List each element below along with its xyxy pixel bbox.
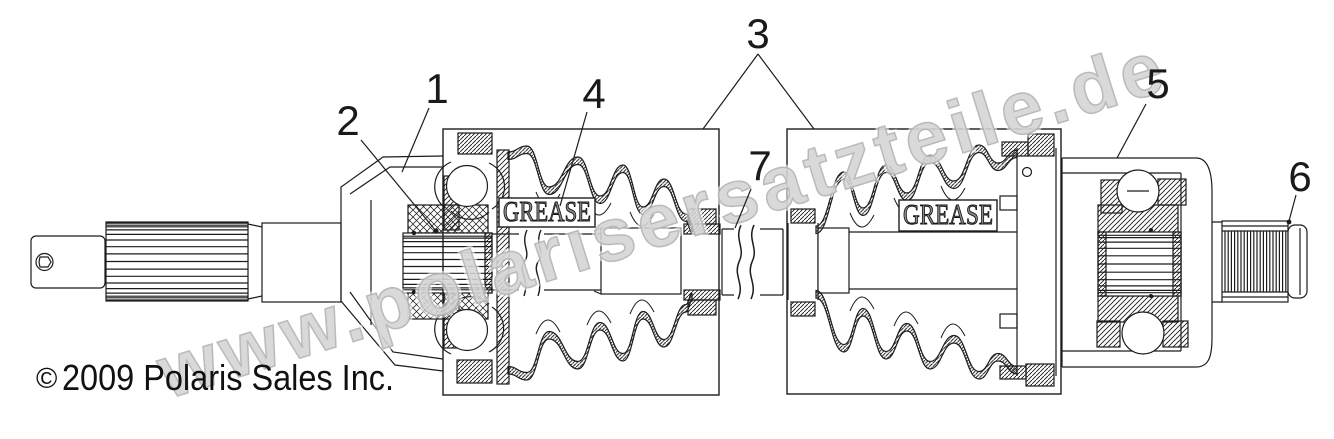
svg-text:2009 Polaris Sales Inc.: 2009 Polaris Sales Inc. bbox=[62, 357, 394, 398]
svg-text:3: 3 bbox=[746, 10, 769, 57]
svg-text:5: 5 bbox=[1146, 60, 1169, 107]
svg-text:7: 7 bbox=[748, 142, 771, 189]
svg-text:2: 2 bbox=[336, 97, 359, 144]
svg-text:4: 4 bbox=[582, 70, 605, 117]
svg-text:GREASE: GREASE bbox=[903, 199, 993, 231]
svg-text:GREASE: GREASE bbox=[503, 197, 591, 228]
svg-text:©: © bbox=[36, 363, 57, 395]
svg-text:1: 1 bbox=[425, 65, 448, 112]
svg-text:6: 6 bbox=[1288, 153, 1311, 200]
